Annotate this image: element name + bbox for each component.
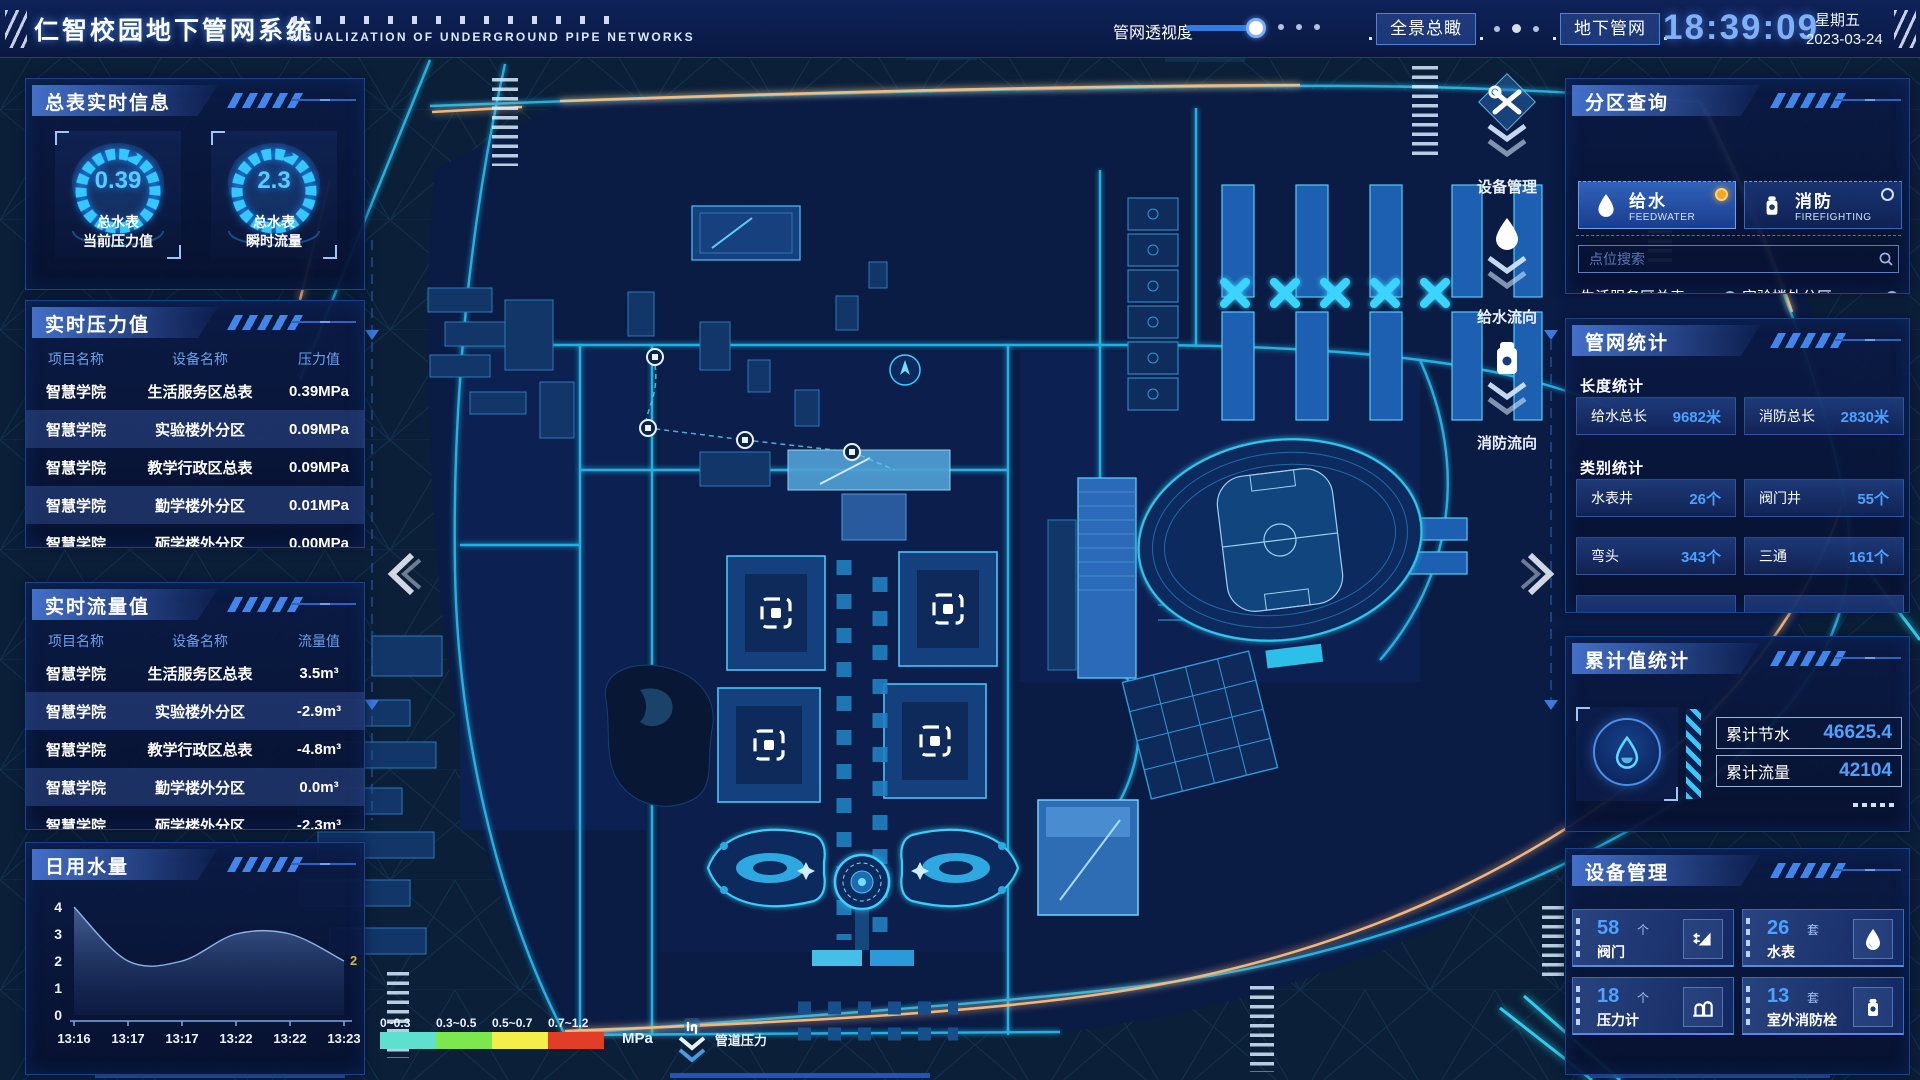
table-row[interactable]: 智慧学院生活服务区总表0.39MPa (26, 372, 364, 410)
pressure-table-header: 项目名称 设备名称 压力值 (26, 346, 364, 372)
table-row[interactable]: 智慧学院砺学楼外分区-2.3m³ (26, 806, 364, 830)
table-cell: -4.8m³ (274, 741, 364, 758)
valve-icon (1690, 926, 1716, 952)
title-dots-decor (292, 16, 612, 24)
app-title: 仁智校园地下管网系统 (34, 11, 314, 47)
table-cell: 智慧学院 (26, 663, 126, 684)
cumulative-saving: 累计节水 46625.4 (1716, 717, 1902, 749)
table-row[interactable]: 智慧学院教学行政区总表-4.8m³ (26, 730, 364, 768)
table-cell: -2.3m³ (274, 817, 364, 831)
table-cell: 智慧学院 (26, 701, 126, 722)
device-unit: 套 (1807, 989, 1819, 1006)
lab-building (1078, 478, 1136, 678)
stat-box: 水表井26个 (1576, 479, 1736, 517)
legend-range: 0.3~0.5 (436, 1016, 492, 1032)
table-cell: 砺学楼外分区 (126, 815, 274, 831)
legend-color (436, 1032, 492, 1049)
device-icon-frame (1853, 919, 1893, 959)
stat-box: 阀门井55个 (1744, 479, 1904, 517)
radio-firefighting[interactable] (1881, 188, 1894, 201)
device-icon-frame (1683, 919, 1723, 959)
teaching-building (692, 206, 800, 260)
zone-item-label: 实验楼外分区 (1742, 286, 1832, 294)
drop-icon (1593, 192, 1619, 218)
gauge-flow: 2.3 总水表瞬时流量 (211, 131, 337, 259)
panel-title: 实时流量值 (45, 592, 150, 619)
clock-date: 2023-03-24 (1806, 31, 1883, 48)
zone-list: 生活服务区总表实验楼外分区教学行政区总表勤学楼外分区砺学楼外分区宿舍区泵房 (1580, 283, 1902, 294)
panel-daily-water: 日用水量 0123413:1613:1713:1713:2213:2213:23… (25, 842, 365, 1075)
table-cell: 智慧学院 (26, 457, 126, 478)
panel-realtime-flow: 实时流量值 项目名称 设备名称 流量值 智慧学院生活服务区总表3.5m³智慧学院… (25, 582, 365, 830)
pressure-legend: 0~0.30.3~0.50.5~0.70.7~1.2 MPa 管道压力 (380, 1016, 767, 1072)
table-cell: 勤学楼外分区 (126, 777, 274, 798)
device-icon-frame (1853, 987, 1893, 1027)
device-count: 13 (1767, 985, 1789, 1008)
x-tick-label: 13:16 (57, 1031, 90, 1046)
header-bar: 仁智校园地下管网系统 VISUALIZATION OF UNDERGROUND … (0, 0, 1920, 58)
dots-decor-2 (1488, 24, 1545, 33)
x-tick-label: 13:17 (165, 1031, 198, 1046)
table-cell: 智慧学院 (26, 495, 126, 516)
table-cell: 0.09MPa (274, 459, 364, 476)
search-icon[interactable] (1878, 251, 1894, 267)
device-label: 水表 (1767, 942, 1795, 962)
legend-range: 0.7~1.2 (548, 1016, 604, 1032)
map-next-arrow[interactable] (1520, 550, 1560, 598)
x-tick-label: 13:22 (219, 1031, 252, 1046)
zone-item-radio[interactable] (1886, 291, 1898, 295)
pressure-table-body: 智慧学院生活服务区总表0.39MPa智慧学院实验楼外分区0.09MPa智慧学院教… (26, 372, 364, 548)
stat-value: 55个 (1857, 488, 1889, 509)
clock-time: 18:39:09 (1663, 8, 1819, 48)
stat-box: 消防总长2830米 (1744, 397, 1904, 435)
search-input[interactable] (1578, 245, 1899, 273)
legend-segment: 0.7~1.2 (548, 1016, 604, 1049)
flow-table-header: 项目名称 设备名称 流量值 (26, 628, 364, 654)
y-tick-label: 2 (54, 953, 62, 969)
table-cell: 勤学楼外分区 (126, 495, 274, 516)
panel-pipe-stats: 管网统计 长度统计 给水总长9682米消防总长2830米 类别统计 水表井26个… (1565, 318, 1910, 613)
gauge-label: 总水表当前压力值 (55, 213, 181, 251)
length-stats-label: 长度统计 (1580, 375, 1644, 396)
device-label: 阀门 (1597, 942, 1625, 962)
table-cell: 砺学楼外分区 (126, 533, 274, 549)
x-tick-label: 13:23 (327, 1031, 360, 1046)
stat-box: 弯头343个 (1576, 537, 1736, 575)
legend-scale: 0~0.30.3~0.50.5~0.70.7~1.2 (380, 1016, 604, 1049)
daily-water-chart: 0123413:1613:1713:1713:2213:2213:232 (32, 885, 360, 1071)
table-cell: 实验楼外分区 (126, 701, 274, 722)
radio-feedwater[interactable] (1715, 188, 1728, 201)
central-plaza (835, 855, 889, 909)
device-label: 压力计 (1597, 1010, 1639, 1030)
x-tick-label: 13:22 (273, 1031, 306, 1046)
hatch-decor (1686, 709, 1701, 799)
area-series (74, 907, 344, 1015)
stat-value: 26个 (1689, 488, 1721, 509)
divider (1576, 235, 1901, 236)
panel-title: 设备管理 (1585, 858, 1669, 885)
panel-title: 分区查询 (1585, 88, 1669, 115)
flow-table-body: 智慧学院生活服务区总表3.5m³智慧学院实验楼外分区-2.9m³智慧学院教学行政… (26, 654, 364, 830)
table-row[interactable]: 智慧学院生活服务区总表3.5m³ (26, 654, 364, 692)
panel-title: 日用水量 (45, 852, 129, 879)
cumulative-flow: 累计流量 42104 (1716, 755, 1902, 787)
compass-plaza (890, 355, 920, 385)
pressure-label: 管道压力 (715, 1030, 767, 1049)
drop-icon (1610, 735, 1644, 769)
y-tick-label: 4 (54, 899, 62, 915)
overview-button[interactable]: 全景总瞰 (1376, 13, 1476, 45)
legend-color (492, 1032, 548, 1049)
legend-range: 0~0.3 (380, 1016, 436, 1032)
table-cell: 0.39MPa (274, 383, 364, 400)
table-row[interactable]: 智慧学院砺学楼外分区0.00MPa (26, 524, 364, 548)
header-right-decor (1894, 10, 1916, 48)
table-cell: 0.00MPa (274, 535, 364, 549)
legend-unit: MPa (622, 1030, 653, 1047)
gauge-value: 2.3 (211, 167, 337, 195)
drop-icon (1861, 927, 1885, 951)
stat-label: 消防总长 (1759, 406, 1815, 426)
table-cell: 智慧学院 (26, 381, 126, 402)
panel-device-mgmt: 设备管理 58个阀门26套水表18个压力计13套室外消防栓 (1565, 848, 1910, 1075)
table-cell: 教学行政区总表 (126, 739, 274, 760)
stat-label: 水表井 (1591, 488, 1633, 508)
panel-cumulative: 累计值统计 累计节水 46625.4 累计流量 42104 (1565, 636, 1910, 832)
device-unit: 个 (1637, 989, 1649, 1006)
lake (605, 665, 713, 806)
device-card-水表[interactable]: 26套水表 (1742, 909, 1904, 967)
stat-label: 给水总长 (1591, 406, 1647, 426)
y-tick-label: 3 (54, 926, 62, 942)
table-cell: 0.0m³ (274, 779, 364, 796)
gauge-pressure: 0.39 总水表当前压力值 (55, 131, 181, 259)
table-row[interactable]: 智慧学院实验楼外分区-2.9m³ (26, 692, 364, 730)
stat-box-clipped (1576, 595, 1736, 613)
device-card-室外消防栓[interactable]: 13套室外消防栓 (1742, 977, 1904, 1035)
device-unit: 个 (1637, 921, 1649, 938)
clock-weekday: 星期五 (1815, 9, 1860, 30)
table-cell: 智慧学院 (26, 777, 126, 798)
legend-color (380, 1032, 436, 1049)
table-row[interactable]: 智慧学院教学行政区总表0.09MPa (26, 448, 364, 486)
device-card-压力计[interactable]: 18个压力计 (1572, 977, 1734, 1035)
table-cell: -2.9m³ (274, 703, 364, 720)
table-cell: 生活服务区总表 (126, 663, 274, 684)
table-cell: 教学行政区总表 (126, 457, 274, 478)
legend-segment: 0.3~0.5 (436, 1016, 492, 1049)
app-subtitle: VISUALIZATION OF UNDERGROUND PIPE NETWOR… (288, 30, 695, 44)
gauge-value: 0.39 (55, 167, 181, 195)
table-cell: 3.5m³ (274, 665, 364, 682)
stat-value: 161个 (1849, 546, 1889, 567)
slider-handle[interactable] (1246, 18, 1266, 38)
panel-realtime-meters: 总表实时信息 0.39 总水表当前压力值 2.3 总水表瞬时流量 (25, 78, 365, 290)
stat-label: 三通 (1759, 546, 1787, 566)
gauge-icon (1690, 994, 1716, 1020)
pipe-pressure-indicator[interactable]: 管道压力 (675, 1016, 767, 1072)
table-cell: 生活服务区总表 (126, 381, 274, 402)
table-cell: 0.01MPa (274, 497, 364, 514)
device-card-阀门[interactable]: 58个阀门 (1572, 909, 1734, 967)
stat-value: 343个 (1681, 546, 1721, 567)
y-tick-label: 1 (54, 980, 62, 996)
zone-item-radio[interactable] (1724, 291, 1736, 295)
table-row[interactable]: 智慧学院实验楼外分区0.09MPa (26, 410, 364, 448)
gymnasium (1038, 800, 1138, 915)
device-count: 58 (1597, 917, 1619, 940)
zone-item-label: 生活服务区总表 (1580, 286, 1685, 294)
gauge-label: 总水表瞬时流量 (211, 213, 337, 251)
table-cell: 智慧学院 (26, 533, 126, 549)
cumulative-icon-frame (1576, 707, 1678, 801)
stat-box: 给水总长9682米 (1576, 397, 1736, 435)
overlay-label-device: 设备管理 (1477, 178, 1537, 196)
table-row[interactable]: 智慧学院勤学楼外分区0.0m³ (26, 768, 364, 806)
device-count: 18 (1597, 985, 1619, 1008)
header-left-decor (5, 10, 27, 48)
panel-title: 累计值统计 (1585, 646, 1690, 673)
table-cell: 智慧学院 (26, 815, 126, 831)
overlay-label-fire: 消防流向 (1477, 434, 1537, 452)
legend-range: 0.5~0.7 (492, 1016, 548, 1032)
category-stats-label: 类别统计 (1580, 457, 1644, 478)
stat-label: 弯头 (1591, 546, 1619, 566)
zone-item[interactable]: 实验楼外分区 (1742, 283, 1902, 294)
legend-segment: 0.5~0.7 (492, 1016, 548, 1049)
device-icon-frame (1683, 987, 1723, 1027)
stat-box: 三通161个 (1744, 537, 1904, 575)
water-drop-badge (1593, 718, 1661, 786)
map-prev-arrow[interactable] (382, 550, 422, 598)
stat-label: 阀门井 (1759, 488, 1801, 508)
tab-feedwater[interactable]: 给水FEEDWATER (1578, 181, 1736, 229)
table-cell: 实验楼外分区 (126, 419, 274, 440)
pressure-meter-icon (675, 1016, 709, 1072)
zone-item[interactable]: 生活服务区总表 (1580, 283, 1740, 294)
hydrant-icon (1759, 192, 1785, 218)
stat-value: 9682米 (1673, 406, 1721, 427)
stat-value: 2830米 (1841, 406, 1889, 427)
panel-realtime-pressure: 实时压力值 项目名称 设备名称 压力值 智慧学院生活服务区总表0.39MPa智慧… (25, 300, 365, 548)
panel-title: 实时压力值 (45, 310, 150, 337)
table-cell: 智慧学院 (26, 739, 126, 760)
legend-segment: 0~0.3 (380, 1016, 436, 1049)
overlay-label-feedwater: 给水流向 (1477, 308, 1537, 326)
x-tick-label: 13:17 (111, 1031, 144, 1046)
pipe-opacity-slider[interactable] (1186, 25, 1262, 31)
dots-decor-1 (1272, 24, 1326, 30)
device-label: 室外消防栓 (1767, 1010, 1837, 1030)
chart-end-label: 2 (350, 953, 357, 968)
underground-button[interactable]: 地下管网 (1560, 13, 1660, 45)
hydrant-icon (1861, 995, 1885, 1019)
tab-firefighting[interactable]: 消防FIREFIGHTING (1744, 181, 1902, 229)
device-unit: 套 (1807, 921, 1819, 938)
pipe-opacity-label: 管网透视度 (1113, 19, 1193, 43)
legend-color (548, 1032, 604, 1049)
panel-zone-query: 分区查询 给水FEEDWATER 消防FIREFIGHTING 生活服务区总表实… (1565, 78, 1910, 294)
panel-title: 管网统计 (1585, 328, 1669, 355)
table-cell: 智慧学院 (26, 419, 126, 440)
y-tick-label: 0 (54, 1007, 62, 1023)
dots-decor (1853, 803, 1897, 807)
table-cell: 0.09MPa (274, 421, 364, 438)
table-row[interactable]: 智慧学院勤学楼外分区0.01MPa (26, 486, 364, 524)
stat-box-clipped (1744, 595, 1904, 613)
device-count: 26 (1767, 917, 1789, 940)
panel-title: 总表实时信息 (45, 88, 171, 115)
